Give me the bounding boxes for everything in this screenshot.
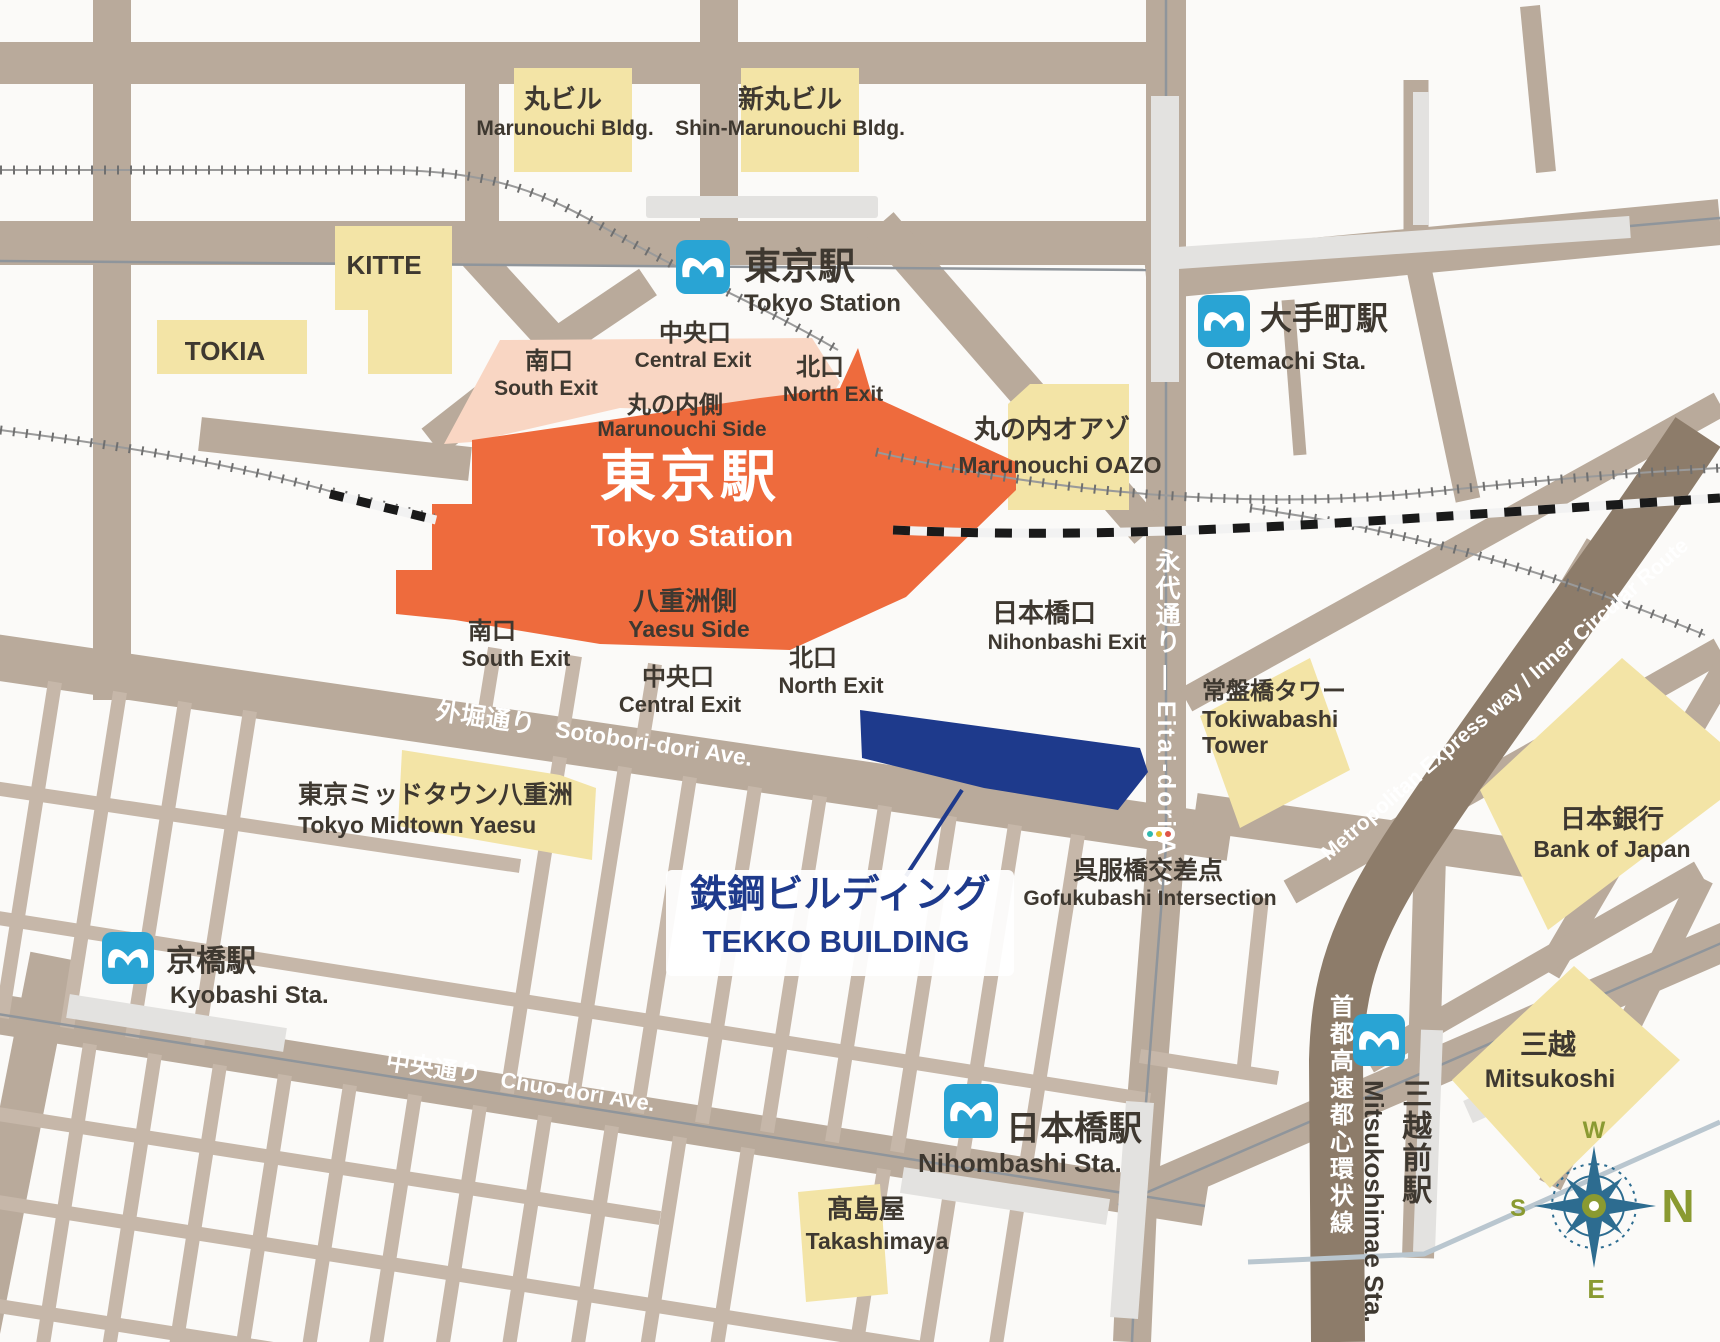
tokiwabashi-tower-label-jp: 常盤橋タワー [1202, 680, 1346, 705]
compass-w: W [1583, 1117, 1606, 1144]
tokia-label: TOKIA [185, 338, 265, 365]
oazo-label-en: Marunouchi OAZO [958, 454, 1161, 478]
yaesu-south-exit-jp: 南口 [468, 620, 516, 645]
marunouchi-south-exit-en: South Exit [494, 378, 598, 400]
bank-of-japan-label-jp: 日本銀行 [1560, 806, 1664, 833]
nihombashi-station-label-en: Nihombashi Sta. [918, 1150, 1122, 1177]
marunouchi-bldg-label-jp: 丸ビル [524, 86, 602, 113]
marunouchi-bldg-label-en: Marunouchi Bldg. [476, 118, 653, 140]
mitsukoshi-label-en: Mitsukoshi [1485, 1066, 1616, 1092]
tokyo-metro-icon [1353, 1014, 1405, 1066]
yaesu-north-exit-en: North Exit [778, 675, 883, 698]
station-main-label-en: Tokyo Station [591, 520, 794, 552]
compass-n: N [1661, 1180, 1694, 1232]
map-canvas: W N S E [0, 0, 1720, 1342]
midtown-yaesu-label-jp: 東京ミッドタウン八重洲 [298, 782, 573, 808]
tokyo-metro-icon [676, 240, 730, 294]
otemachi-station-label-jp: 大手町駅 [1260, 302, 1388, 335]
kyobashi-station-label-jp: 京橋駅 [166, 946, 256, 977]
mitsukoshi-label-jp: 三越 [1520, 1030, 1576, 1059]
yaesu-central-exit-en: Central Exit [619, 694, 741, 717]
yaesu-central-exit-jp: 中央口 [642, 666, 714, 691]
shuto-expressway-label: 首都高速都心環状線 [1326, 994, 1351, 1237]
marunouchi-south-exit-jp: 南口 [525, 350, 573, 375]
tokiwabashi-tower-label-en2: Tower [1202, 734, 1268, 758]
kitte-shape [335, 226, 452, 374]
traffic-light-icon [1143, 827, 1175, 841]
marunouchi-central-exit-jp: 中央口 [659, 322, 731, 347]
nihonbashi-exit-jp: 日本橋口 [992, 600, 1096, 627]
mitsukoshimae-station-label-jp: 三越前駅 [1398, 1078, 1429, 1206]
compass-s: S [1510, 1195, 1526, 1222]
takashimaya-label-en: Takashimaya [806, 1230, 949, 1254]
marunouchi-side-label-en: Marunouchi Side [597, 419, 766, 441]
yaesu-north-exit-jp: 北口 [789, 647, 837, 672]
kitte-label: KITTE [346, 252, 421, 279]
bank-of-japan-label-en: Bank of Japan [1533, 838, 1690, 862]
kyobashi-station-label-en: Kyobashi Sta. [170, 984, 329, 1009]
nihombashi-station-label-jp: 日本橋駅 [1006, 1112, 1142, 1147]
shin-marunouchi-bldg-label-jp: 新丸ビル [738, 86, 842, 113]
gofukubashi-intersection-en: Gofukubashi Intersection [1023, 888, 1276, 910]
tokyo-metro-icon [944, 1084, 998, 1138]
marunouchi-central-exit-en: Central Exit [635, 350, 752, 372]
shin-marunouchi-bldg-label-en: Shin-Marunouchi Bldg. [675, 118, 905, 140]
station-main-label-jp: 東京駅 [600, 448, 780, 506]
tokiwabashi-tower-label-en1: Tokiwabashi [1202, 708, 1338, 732]
marunouchi-side-label-jp: 丸の内側 [627, 394, 723, 419]
nihonbashi-exit-en: Nihonbashi Exit [988, 632, 1147, 654]
tokyo-station-label-en: Tokyo Station [744, 292, 901, 317]
oazo-label-jp: 丸の内オアゾ [974, 416, 1130, 443]
otemachi-station-label-en: Otemachi Sta. [1206, 350, 1366, 375]
midtown-yaesu-label-en: Tokyo Midtown Yaesu [298, 814, 536, 838]
yaesu-side-label-en: Yaesu Side [628, 618, 749, 642]
mitsukoshimae-station-label-en: Mitsukoshimae Sta. [1360, 1080, 1387, 1323]
eitai-dori-ave-label: 永代通り — Eitai-dori Ave. [1153, 548, 1179, 897]
yaesu-south-exit-en: South Exit [462, 648, 571, 671]
gofukubashi-intersection-jp: 呉服橋交差点 [1073, 858, 1223, 884]
tekko-building-access-map: W N S E 丸ビル Marunouchi Bldg. 新丸ビル Shin-M… [0, 0, 1720, 1342]
yaesu-side-label-jp: 八重洲側 [633, 588, 737, 615]
tokyo-station-label-jp: 東京駅 [744, 248, 855, 286]
compass-e: E [1587, 1274, 1604, 1304]
tekko-building-label-en: TEKKO BUILDING [703, 926, 970, 958]
marunouchi-north-exit-en: North Exit [783, 384, 883, 406]
tekko-building-label-jp: 鉄鋼ビルディング [689, 876, 990, 916]
tokyo-metro-icon [1198, 295, 1250, 347]
tokyo-metro-icon [102, 932, 154, 984]
takashimaya-label-jp: 髙島屋 [827, 1196, 905, 1223]
marunouchi-north-exit-jp: 北口 [796, 356, 844, 381]
